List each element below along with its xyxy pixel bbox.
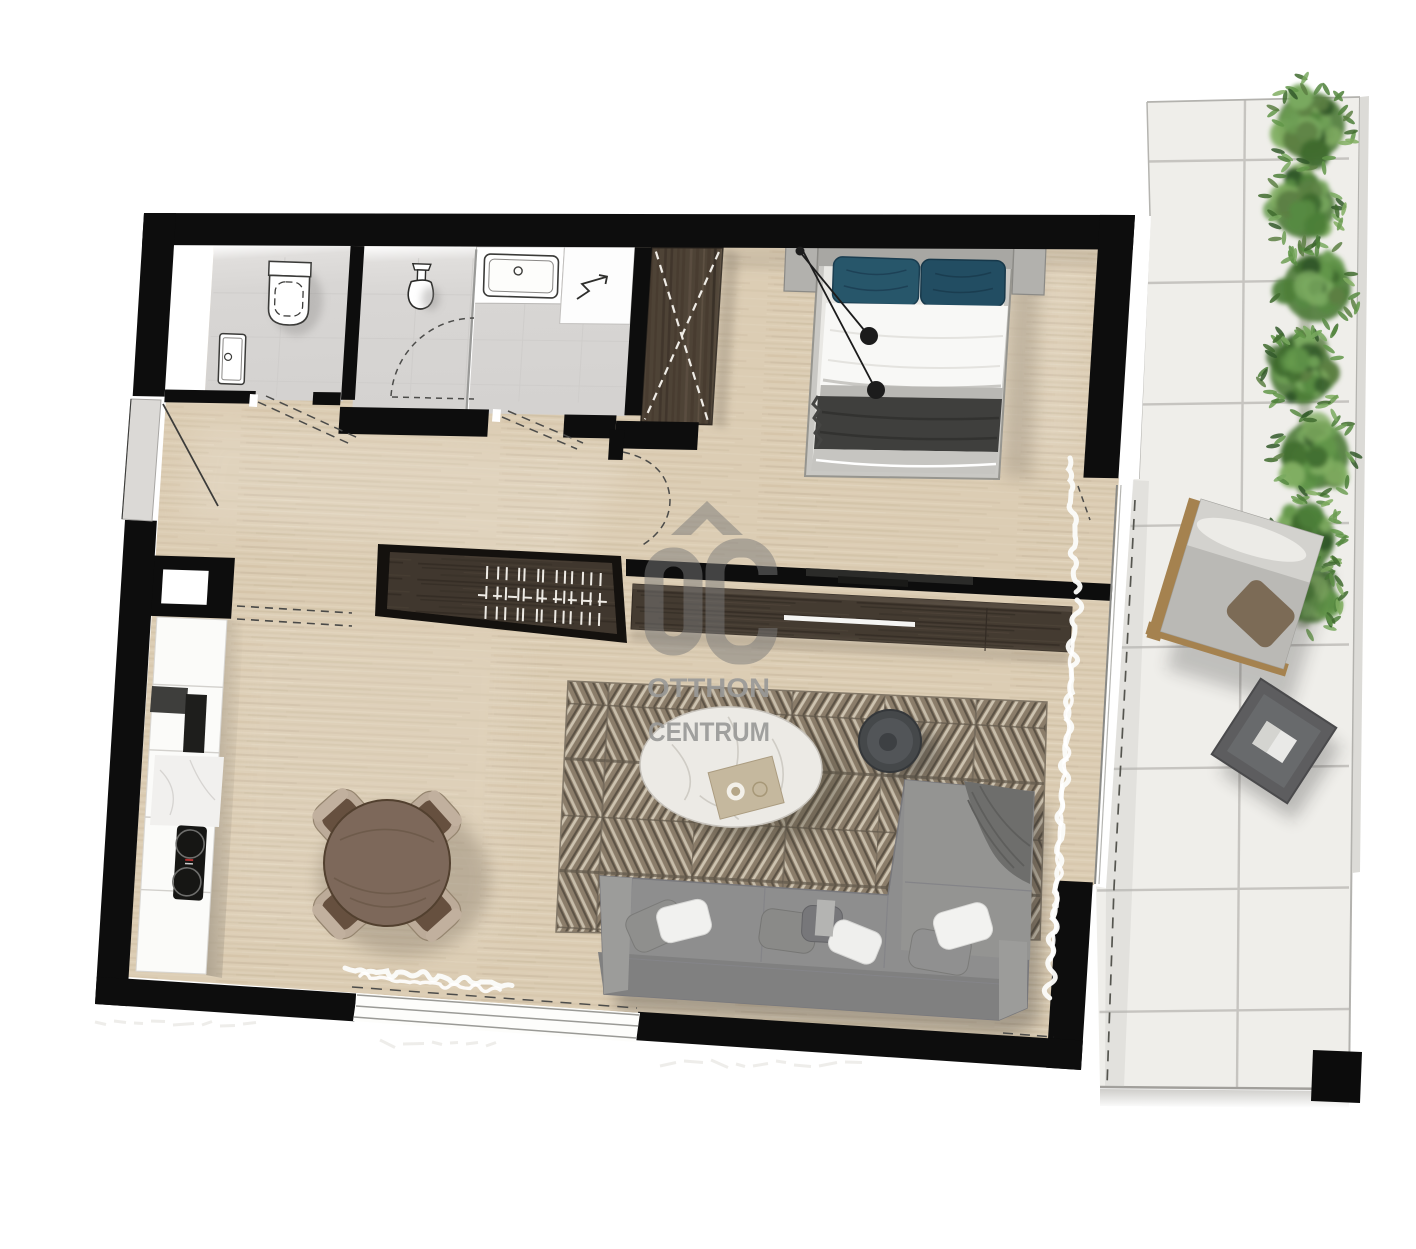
svg-text:OTTHON: OTTHON: [647, 673, 770, 703]
svg-text:CENTRUM: CENTRUM: [648, 717, 770, 747]
